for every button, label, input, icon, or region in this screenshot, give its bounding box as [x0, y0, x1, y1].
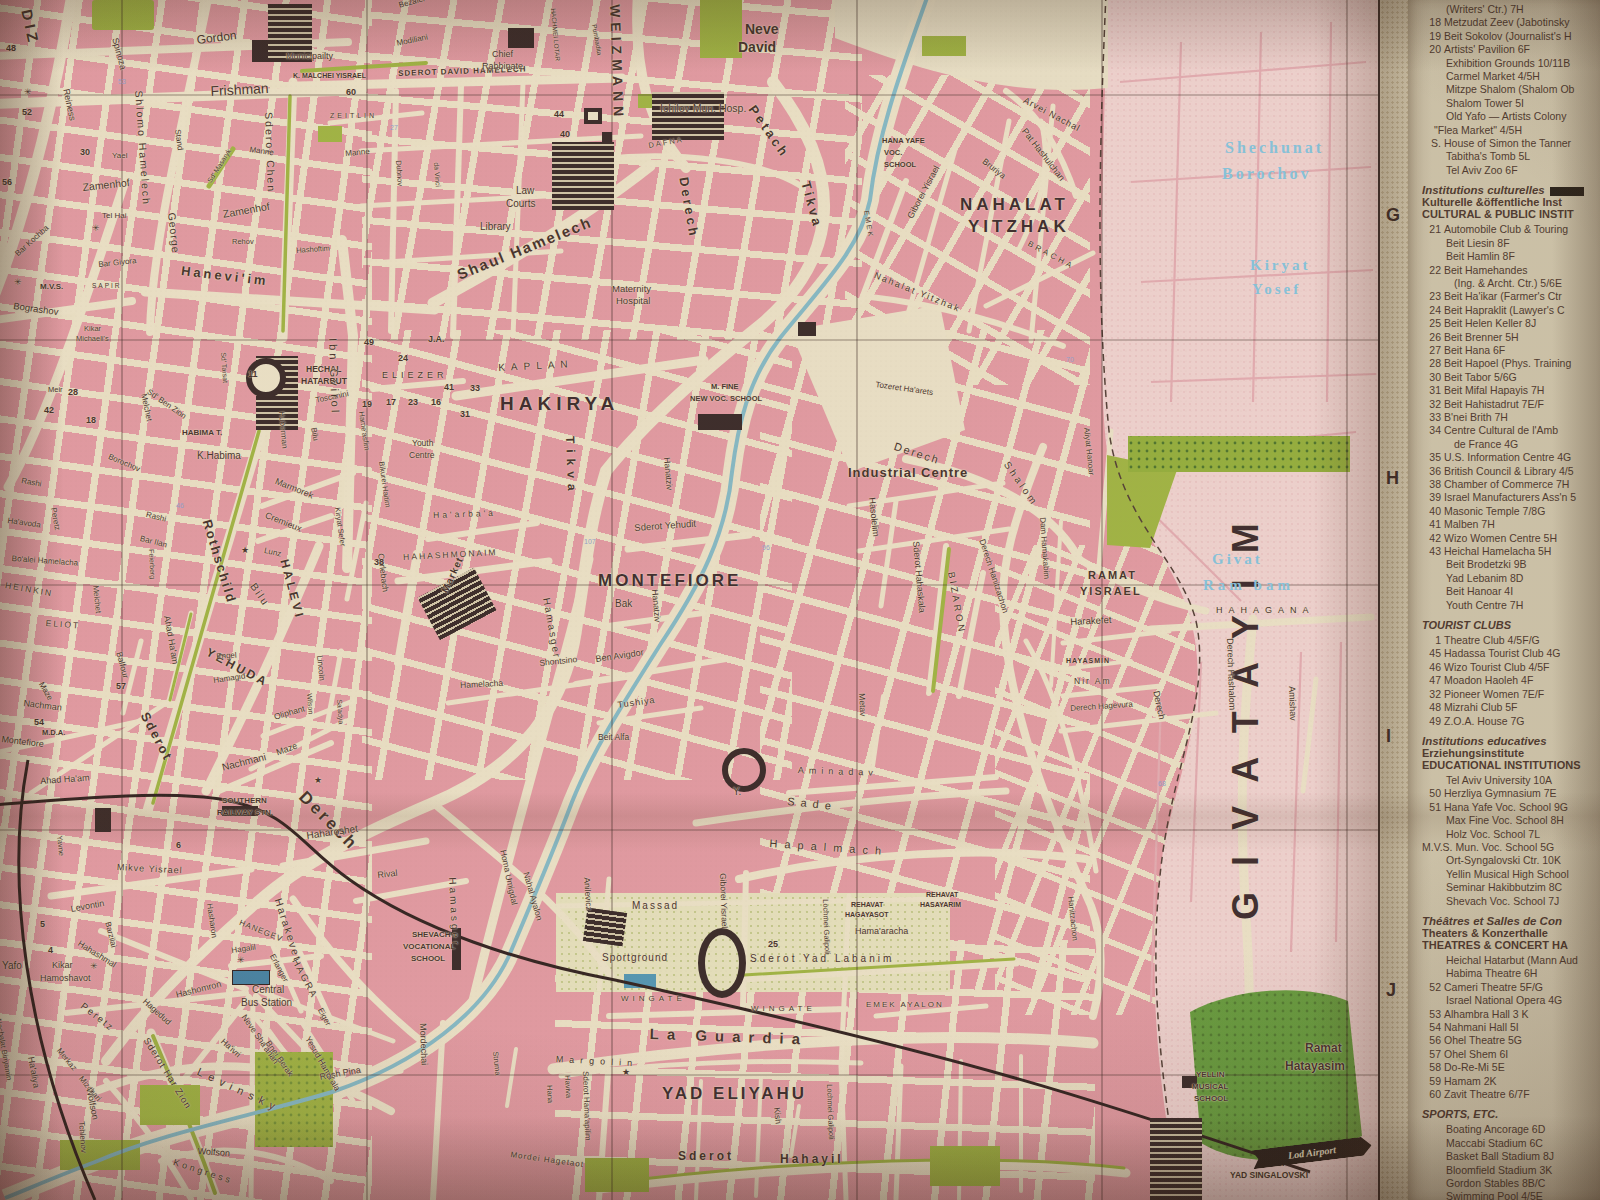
- map-label: Neve Sha'anan: [240, 1013, 280, 1065]
- map-label: MUSICAL: [1192, 1083, 1228, 1091]
- map-label: Aminadav: [798, 766, 878, 778]
- map-label: Bograshov: [13, 301, 59, 317]
- map-label: KAPLAN: [498, 359, 574, 373]
- map-label: Bezalel: [398, 0, 425, 10]
- map-label: HASAYARIM: [920, 901, 961, 908]
- map-label: Derech Hanitzachon: [978, 538, 1010, 614]
- map-label: Ha'ivri: [219, 1037, 242, 1059]
- legend-item: 35U.S. Information Centre 4G: [1422, 451, 1600, 464]
- map-label: Shontsino: [539, 655, 577, 667]
- map-label: SOUTHERN: [222, 797, 267, 805]
- map-label: Yafo: [2, 961, 22, 971]
- map-label: 52: [22, 108, 32, 117]
- map-label: Library: [480, 222, 511, 232]
- legend-item: 43Heichal Hamelacha 5H: [1422, 545, 1600, 558]
- map-label: J.A.: [428, 335, 445, 344]
- legend-item: Bloomfield Stadium 3K: [1422, 1164, 1600, 1177]
- map-label: Shechunat: [1225, 140, 1324, 156]
- map-label: M.V.S.: [40, 283, 63, 291]
- grid-letter: J: [1386, 980, 1396, 1001]
- legend-item: Exhibition Grounds 10/11B: [1422, 57, 1600, 70]
- legend-item: Old Yafo — Artists Colony: [1422, 110, 1600, 123]
- map-label: Wolfson: [197, 1147, 230, 1158]
- legend-section-header: Institutions educativesErziehungsinstitu…: [1422, 735, 1600, 771]
- map-label: 19: [362, 400, 372, 409]
- map-label: Hame'asfim: [358, 411, 371, 451]
- map-label: 6: [176, 841, 181, 850]
- legend-item: 38Chamber of Commerce 7H: [1422, 478, 1600, 491]
- map-label: RAILWAY STN.: [217, 809, 273, 817]
- map-label: YAD ELIYAHU: [662, 1085, 807, 1102]
- map-label: HAHAGANA: [1216, 606, 1315, 615]
- map-label: Bar Ilan: [139, 535, 168, 549]
- legend-item: 34Centre Cultural de l'Amb: [1422, 424, 1600, 437]
- map-label: Tchlenov: [77, 1121, 87, 1153]
- map-label: Levontin: [70, 899, 105, 914]
- map-label: NAHALAT: [960, 196, 1069, 213]
- map-label: Law: [516, 186, 534, 196]
- legend-item: 42Wizo Women Centre 5H: [1422, 532, 1600, 545]
- map-label: Hospital: [616, 296, 650, 306]
- map-label: Mordechai: [418, 1023, 428, 1065]
- map-label: Modiliani: [396, 33, 429, 47]
- map-label: Bilu: [309, 427, 319, 442]
- map-label: Hagedud: [141, 997, 172, 1026]
- map-label: Sderot: [139, 710, 175, 763]
- legend-item: 58Do-Re-Mi 5E: [1422, 1061, 1600, 1074]
- legend-item: Tel Aviv Zoo 6F: [1422, 164, 1600, 177]
- map-label: 31: [460, 410, 470, 419]
- legend-item: Mitzpe Shalom (Shalom Ob: [1422, 83, 1600, 96]
- map-label: M. FINE: [711, 383, 739, 391]
- legend-item: Shevach Voc. School 7J: [1422, 895, 1600, 908]
- map-label: Hahayil: [780, 1153, 844, 1165]
- map-label: 4: [48, 946, 53, 955]
- map-label: VOCATIONAL: [403, 943, 455, 951]
- map-label: Hanevi'im: [180, 264, 269, 288]
- map-label: BIZARON: [947, 571, 967, 635]
- map-label: NEW VOC. SCHOOL: [690, 395, 762, 403]
- map-label: Chief: [492, 50, 513, 59]
- legend-item: 22Beit Hamehandes: [1422, 264, 1600, 277]
- legend-item: Holz Voc. School 7L: [1422, 828, 1600, 841]
- legend-item: Max Fine Voc. School 8H: [1422, 814, 1600, 827]
- map-label: Ha'avoda: [7, 517, 41, 530]
- map-label: Yavne: [56, 835, 66, 856]
- map-label: David: [738, 40, 776, 54]
- legend-item: Yellin Musical High School: [1422, 868, 1600, 881]
- map-label: Ha'arba'a: [433, 509, 496, 520]
- legend-item: 20Artists' Pavilion 6F: [1422, 43, 1600, 56]
- map-label: Massad: [632, 901, 679, 911]
- legend-item: 26Beit Brenner 5H: [1422, 331, 1600, 344]
- legend-item: Carmel Market 4/5H: [1422, 70, 1600, 83]
- map-label: Borochov: [1222, 166, 1311, 182]
- map-label: ELIEZER: [382, 371, 448, 380]
- map-label: Tikva: [564, 436, 578, 497]
- legend-item: Habima Theatre 6H: [1422, 967, 1600, 980]
- legend-item: 27Beit Hana 6F: [1422, 344, 1600, 357]
- map-label: 48: [6, 44, 16, 53]
- map-photo: NAHALATYITZHAKHAKIRYAMONTEFIOREYAD ELIYA…: [0, 0, 1600, 1200]
- map-label: K.Habima: [197, 451, 241, 461]
- map-label: Municipailty: [286, 52, 333, 61]
- map-label: EMEK: [863, 210, 875, 239]
- map-label: Kikar: [84, 325, 101, 333]
- map-label: Zamenhof: [82, 177, 130, 192]
- grid-letter: H: [1386, 468, 1399, 489]
- legend-item: Tel Aviv University 10A: [1422, 774, 1600, 787]
- map-label: 38: [374, 558, 384, 567]
- map-label: Struma: [492, 1051, 502, 1076]
- map-label: Montefiore: [1, 735, 44, 749]
- map-label: Hapalmach: [769, 838, 888, 857]
- legend-item: M.V.S.Mun. Voc. School 5G: [1422, 841, 1600, 854]
- legend-item: Shalom Tower 5I: [1422, 97, 1600, 110]
- map-label: Giborei Yisrael: [719, 873, 729, 929]
- legend-item: 49Z.O.A. House 7G: [1422, 715, 1600, 728]
- map-label: Dam Hamakabim: [1038, 517, 1050, 579]
- map-label: Michaeli's: [76, 335, 109, 343]
- map-label: Lochmei Galipoli: [826, 1084, 835, 1140]
- legend-item: 36British Council & Library 4/5: [1422, 465, 1600, 478]
- map-label: Hanatziv: [651, 589, 662, 623]
- legend-item: 21Automobile Club & Touring: [1422, 223, 1600, 236]
- map-label: Bruriya: [981, 157, 1007, 180]
- map-label: Market: [440, 555, 465, 594]
- map-label: Kiryat: [1250, 258, 1311, 273]
- map-label: D I Z: [19, 8, 40, 43]
- legend-item: 40Masonic Temple 7/8G: [1422, 505, 1600, 518]
- map-label: 5: [40, 920, 45, 929]
- map-label: 54: [34, 718, 44, 727]
- map-label: Oliphant: [273, 704, 306, 721]
- map-label: Erlanger: [268, 953, 289, 983]
- map-label: Merkaz: [55, 1047, 78, 1072]
- legend-item: Beit Brodetzki 9B: [1422, 558, 1600, 571]
- map-label: Stand: [173, 129, 184, 151]
- map-label: 17: [386, 398, 396, 407]
- map-label: Y.: [733, 787, 741, 797]
- map-label: Arvei Nachal: [1022, 96, 1082, 134]
- map-label: Bus Station: [241, 998, 292, 1008]
- legend-item: 59Hamam 2K: [1422, 1075, 1600, 1088]
- map-label: HANEGEV: [238, 919, 284, 944]
- map-label: ✳: [24, 88, 32, 97]
- map-label: Nahal Ayalon: [522, 871, 544, 921]
- map-label: 23: [408, 398, 418, 407]
- map-label: 28: [68, 388, 78, 397]
- map-label: Ichilov Mun. Hosp.: [660, 103, 746, 114]
- legend-item: 31Beit Mifal Hapayis 7H: [1422, 384, 1600, 397]
- map-label: HAHASHMONAIM: [403, 548, 498, 561]
- map-label: 18: [86, 416, 96, 425]
- map-label: Hanatziv: [663, 457, 674, 491]
- legend-item: 48Mizrahi Club 5F: [1422, 701, 1600, 714]
- map-label: Nachman: [23, 699, 62, 713]
- legend-item: 18Metzudat Zeev (Jabotinsky: [1422, 16, 1600, 29]
- map-label: 56: [2, 178, 12, 187]
- map-label: HANA YAFE: [882, 137, 925, 145]
- map-label: HALEVI: [278, 558, 306, 621]
- map-label: Lunz: [263, 547, 282, 558]
- map-label: WINGATE: [621, 995, 686, 1003]
- legend-item: 50Herzliya Gymnasium 7E: [1422, 787, 1600, 800]
- map-label: HAKIRYA: [500, 394, 619, 413]
- map-label: SCHOOL: [884, 161, 916, 169]
- map-label: RAMAT: [1088, 570, 1137, 581]
- map-label: Sderot Yad Labanim: [750, 954, 894, 964]
- map-label: Levinsky: [195, 1066, 282, 1114]
- map-label: Reiness: [61, 88, 77, 122]
- legend-item: 1Theatre Club 4/5F/G: [1422, 634, 1600, 647]
- map-label: Hagalil: [231, 944, 256, 955]
- map-label: YISRAEL: [1080, 586, 1142, 597]
- map-label: REHAVAT: [851, 901, 883, 908]
- map-label: Nachmani: [221, 752, 267, 773]
- legend-item: 52Cameri Theatre 5F/G: [1422, 981, 1600, 994]
- map-label: Bilu: [248, 581, 271, 608]
- map-label: HAGAYASOT: [845, 911, 888, 918]
- map-label: ★: [241, 546, 249, 555]
- map-label: Mikve Yisrael: [117, 863, 183, 875]
- map-label: Meir: [48, 386, 63, 394]
- map-label: YAD SINGALOVSKI: [1230, 1171, 1308, 1180]
- map-label: HACHMEI LOTAR: [550, 8, 561, 61]
- map-label: Ramat: [1305, 1042, 1342, 1054]
- map-label: Derech: [677, 176, 701, 239]
- map-label: Courts: [506, 199, 535, 209]
- map-label: Pat Hashulchan: [1020, 127, 1066, 183]
- map-label: Bikurei Haitim: [378, 461, 392, 508]
- legend-item: S.House of Simon the Tanner: [1422, 137, 1600, 150]
- map-label: Sderot Hama'apilim: [581, 1071, 591, 1141]
- map-label: BRACHA: [1026, 240, 1075, 271]
- map-label: Bar Giyora: [98, 257, 137, 269]
- map-label: Tikva: [799, 180, 824, 230]
- map-label: WINGATE: [751, 1005, 816, 1013]
- map-label: Melchet: [91, 585, 102, 614]
- map-label: Nahalat Yitzhak: [873, 271, 962, 314]
- map-label: Rival: [377, 869, 398, 880]
- legend-item: 51Hana Yafe Voc. School 9G: [1422, 801, 1600, 814]
- map-label: MONTEFIORE: [598, 572, 741, 589]
- map-label: Rashi: [21, 477, 43, 488]
- legend-item: 57Ohel Shem 6I: [1422, 1048, 1600, 1061]
- legend-item: 54Nahmani Hall 5I: [1422, 1021, 1600, 1034]
- map-label: Kiryat Sefer: [334, 507, 347, 547]
- map-label-layer: NAHALATYITZHAKHAKIRYAMONTEFIOREYAD ELIYA…: [0, 0, 1378, 1200]
- map-label: 70: [1066, 356, 1074, 363]
- map-label: DAFNA: [648, 136, 684, 150]
- map-label: Maternity: [612, 284, 651, 294]
- map-label: Rashi: [145, 511, 167, 524]
- legend-item: 53Alhambra Hall 3 K: [1422, 1008, 1600, 1021]
- map-label: Hamelacha: [460, 679, 503, 690]
- legend-item: 33B'nei Brith 7H: [1422, 411, 1600, 424]
- map-label: Ibn Gvirol: [327, 338, 341, 415]
- map-label: Borochov: [107, 453, 141, 474]
- legend-item: 45Hadassa Tourist Club 4G: [1422, 647, 1600, 660]
- map-label: HEINKIN: [5, 581, 54, 598]
- map-label: Engel: [216, 652, 237, 661]
- map-label: Wilson: [306, 693, 314, 714]
- legend-content: (Writers' Ctr.) 7H18Metzudat Zeev (Jabot…: [1422, 3, 1600, 1200]
- map-label: 68: [1158, 780, 1166, 787]
- map-label: Frishman: [210, 81, 269, 98]
- legend-item: Seminar Hakibbutzim 8C: [1422, 881, 1600, 894]
- map-label: 25: [768, 940, 778, 949]
- map-label: La Guardia: [649, 1026, 808, 1047]
- map-label: SHEVACH: [412, 931, 451, 939]
- map-label: ★: [622, 1068, 630, 1077]
- legend-section-header: Théâtres et Salles de ConTheaters & Konz…: [1422, 915, 1600, 951]
- map-label: Nachalat Binyamin: [0, 1018, 13, 1081]
- map-label: VOC.: [884, 149, 902, 157]
- map-label: Sportground: [602, 953, 668, 963]
- map-label: Shaul Hamelech: [455, 214, 594, 282]
- map-label: Sderot Hahaskala: [911, 541, 926, 613]
- map-label: Huberman: [277, 411, 288, 449]
- legend-item: Basket Ball Stadium 8J: [1422, 1150, 1600, 1163]
- map-label: Industrial Centre: [848, 466, 968, 479]
- map-label: EMEK AYALON: [866, 1001, 944, 1009]
- map-label: ✳: [90, 962, 98, 971]
- map-label: 42: [44, 406, 54, 415]
- map-label: 16: [431, 398, 441, 407]
- map-label: M.D.A.: [42, 729, 65, 737]
- map-label: Balfour: [115, 651, 130, 679]
- map-label: Harakevet: [273, 897, 303, 963]
- map-label: Maze: [37, 681, 54, 702]
- map-label: HAYASMIN: [1066, 657, 1110, 664]
- map-label: Sa'adya: [336, 699, 345, 725]
- map-label: Hasharon: [205, 903, 218, 938]
- legend-item: 47Moadon Haoleh 4F: [1422, 674, 1600, 687]
- legend-section-header: Institutions culturellesKulturelle &öffe…: [1422, 184, 1600, 220]
- map-label: ✳: [14, 278, 22, 287]
- map-label: Ahad Ha'am: [40, 774, 90, 786]
- map-label: Hamagid: [213, 673, 246, 685]
- map-label: 24: [398, 354, 408, 363]
- legend-item: Heichal Hatarbut (Mann Aud: [1422, 954, 1600, 967]
- map-label: Derech: [296, 788, 362, 854]
- map-label: Zamenhof: [222, 201, 270, 220]
- map-label: YELLIN: [1196, 1071, 1224, 1079]
- map-label: ✳: [92, 224, 100, 233]
- map-label: Sade: [787, 796, 838, 812]
- map-label: YITZHAK: [968, 218, 1070, 235]
- legend-item: Tabitha's Tomb 5L: [1422, 150, 1600, 163]
- map-label: Haviva: [564, 1075, 573, 1098]
- map-edge-strip: GHIJ: [1378, 0, 1410, 1200]
- legend-item: Youth Centre 7H: [1422, 599, 1600, 612]
- legend-item: Beit Liesin 8F: [1422, 237, 1600, 250]
- map-label: Rothschild: [201, 518, 239, 605]
- legend-item: 23Beit Ha'ikar (Farmer's Ctr: [1422, 290, 1600, 303]
- legend-item: 25Beit Helen Keller 8J: [1422, 317, 1600, 330]
- legend-item: 32Pioneer Women 7E/F: [1422, 688, 1600, 701]
- legend-item: 46Wizo Tourist Club 4/5F: [1422, 661, 1600, 674]
- map-label: WEIZMANN: [608, 4, 626, 121]
- legend-item: 30Beit Tabor 5/6G: [1422, 371, 1600, 384]
- map-label: Kikar: [52, 961, 73, 970]
- map-label: 46: [176, 502, 184, 509]
- map-label: 57: [116, 682, 126, 691]
- map-label: 107: [584, 538, 596, 545]
- map-label: 27: [390, 124, 398, 131]
- map-label: Petach: [746, 103, 791, 160]
- map-label: 30: [80, 148, 90, 157]
- legend-item: (Ing. & Archt. Ctr.) 5/6E: [1422, 277, 1600, 290]
- map-label: K. MALCHEI YISRAEL: [293, 72, 366, 79]
- map-label: Marmorek: [274, 477, 315, 501]
- legend-item: Maccabi Stadium 6C: [1422, 1137, 1600, 1150]
- map-label: 49: [364, 338, 374, 347]
- map-label: Manne: [249, 146, 274, 157]
- map-label: Ha'aliya: [26, 1056, 40, 1089]
- map-label: Peretz: [49, 507, 61, 531]
- map-label: Derech: [1151, 690, 1166, 720]
- map-label: Aliyat Hanoar: [1082, 427, 1095, 476]
- grid-letter: I: [1386, 726, 1391, 747]
- map-label: Hashomron: [175, 980, 222, 1000]
- map-label: 96: [762, 544, 770, 551]
- map-label: Hanitzachon: [1066, 896, 1079, 941]
- map-label: Tozeret Ha'arets: [875, 381, 934, 397]
- map-label: Ahad Ha'am: [162, 615, 179, 665]
- map-label: Giborei Yisrael: [906, 164, 941, 220]
- legend-swatch: [1550, 187, 1584, 196]
- legend-subheader: SPORTS, ETC.: [1422, 1108, 1600, 1120]
- legend-panel: (Writers' Ctr.) 7H18Metzudat Zeev (Jabot…: [1408, 0, 1600, 1200]
- map-label: SCHOOL: [1194, 1095, 1228, 1103]
- map-label: Manne: [345, 148, 370, 158]
- map-label: Shlomo Hamelech: [134, 90, 153, 206]
- map-label: Hamoshavot: [40, 974, 91, 983]
- map-label: Peretz: [79, 1001, 116, 1033]
- map-label: Hana: [546, 1085, 554, 1103]
- legend-item: 28Beit Hapoel (Phys. Training: [1422, 357, 1600, 370]
- legend-item: Beit Hanoar 4I: [1422, 585, 1600, 598]
- map-label: Hashoftim: [296, 245, 330, 255]
- legend-item: 39Israel Manufacturers Ass'n 5: [1422, 491, 1600, 504]
- map-label: Rabbinate: [482, 62, 523, 71]
- map-label: Pumbadita: [591, 24, 603, 56]
- map-label: Neve: [745, 22, 778, 36]
- map-label: Eiger: [316, 1007, 332, 1027]
- map-label: Dubnov: [395, 160, 404, 186]
- map-label: 60: [346, 88, 356, 97]
- map-label: Beit Alfa: [598, 733, 629, 742]
- map-label: Lincoln: [315, 655, 326, 681]
- map-label: Nir Am: [1074, 677, 1112, 686]
- legend-item: Gordon Stables 8B/C: [1422, 1177, 1600, 1190]
- map-label: Mordei Hagetaot: [510, 1151, 585, 1169]
- legend-item: 60Zavit Theatre 6/7F: [1422, 1088, 1600, 1101]
- map-label: Hamasger: [541, 597, 562, 660]
- map-label: Tushiya: [617, 696, 656, 710]
- map-label: Youth: [412, 439, 433, 448]
- map-label: Rehov: [232, 238, 254, 246]
- map-label: ✳: [237, 956, 245, 965]
- legend-item: 24Beit Hapraklit (Lawyer's C: [1422, 304, 1600, 317]
- legend-item: 32Beit Hahistadrut 7E/F: [1422, 398, 1600, 411]
- map-label: HABIMA T.: [182, 429, 222, 437]
- map-label: Spinoza: [110, 37, 127, 71]
- map-label: Sderot Yehudit: [634, 519, 696, 533]
- map-label: Bak: [615, 599, 632, 609]
